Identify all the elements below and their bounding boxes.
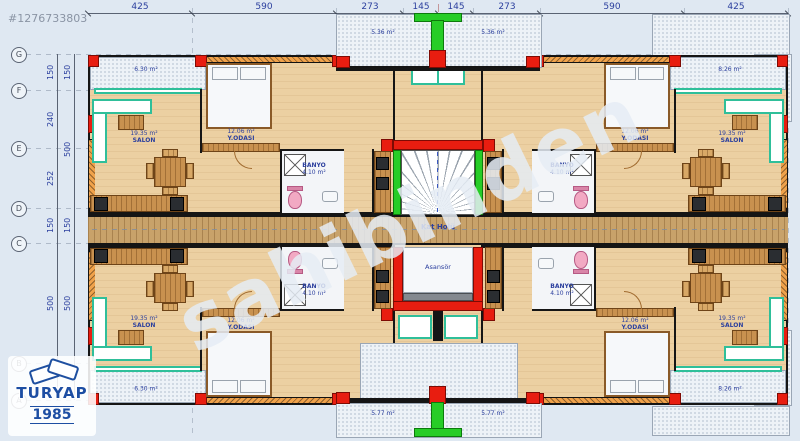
section-marker-stem (431, 402, 444, 430)
balcony-window (674, 88, 782, 94)
dim-top-3: 273 (350, 2, 390, 12)
column (669, 393, 681, 405)
chair (146, 163, 154, 179)
bedroom-wall (674, 89, 676, 153)
salon-name-text: SALON (694, 138, 770, 145)
balcony-window (94, 366, 202, 372)
bedroom-name-text: Y.ODASI (596, 324, 674, 331)
bath-area-text: 4.10 m² (534, 290, 590, 297)
balcony-area-label: 8.26 m² (680, 67, 780, 74)
grid-bubble-d: D (11, 201, 27, 217)
kitchen-wall (502, 245, 504, 311)
stair-wall (393, 140, 483, 150)
bath-label: BANYO 4.10 m² (286, 284, 342, 297)
salon-label: 19.35 m² SALON (694, 316, 770, 329)
fridge (376, 270, 389, 283)
salon-name-text: SALON (694, 322, 770, 329)
balcony-window (94, 88, 202, 94)
bath-label: BANYO 4.10 m² (534, 163, 590, 176)
appliance (692, 249, 706, 263)
exterior-wall-hatch-top (206, 397, 332, 404)
fridge (376, 177, 389, 190)
dimension-line-left-inner (74, 54, 75, 400)
column (777, 55, 788, 67)
dim-top-1: 425 (120, 2, 160, 12)
sink (538, 258, 554, 269)
pillow (638, 380, 664, 393)
bath-area-text: 4.10 m² (534, 170, 590, 177)
pillow (240, 67, 266, 80)
bedroom-name-text: Y.ODASI (202, 324, 280, 331)
sofa (724, 99, 784, 114)
chair (162, 303, 178, 311)
bedroom-wall (674, 307, 676, 371)
dim-left-outer-4: 150 (46, 209, 55, 241)
section-marker-stem (431, 20, 444, 52)
rear-window (398, 315, 432, 339)
apartment-top-left: 6.30 m² 12.06 m² Y.ODASI BANYO 4.10 m² 1… (88, 55, 393, 215)
elevator-wall (393, 301, 483, 311)
balcony-area-text: 6.30 m² (96, 67, 196, 74)
sink (322, 191, 338, 202)
bath-wall (594, 245, 596, 311)
pillow (212, 380, 238, 393)
fridge (487, 270, 500, 283)
sink (538, 191, 554, 202)
oven (376, 157, 389, 170)
sofa (92, 99, 152, 114)
balcony-area-label: 6.30 m² (96, 386, 196, 393)
chair (698, 265, 714, 273)
bath-wall (594, 149, 596, 215)
stove (94, 249, 108, 263)
logo-brand-text: TURYAP (8, 384, 96, 402)
dim-top-7: 590 (592, 2, 632, 12)
balcony-area-text: 8.26 m² (680, 386, 780, 393)
coffee-table (118, 330, 144, 345)
salon-label: 19.35 m² SALON (106, 131, 182, 144)
chair (682, 281, 690, 297)
salon-name-text: SALON (106, 322, 182, 329)
dining-table (690, 157, 722, 187)
dim-left-outer-2: 240 (46, 101, 55, 137)
wardrobe (202, 308, 280, 317)
column (88, 55, 99, 67)
balcony-top-right-label: 5.36 m² (463, 30, 523, 37)
kitchen-wall (502, 149, 504, 215)
oven (376, 290, 389, 303)
balcony-area-text: 5.36 m² (463, 30, 523, 37)
chair (162, 265, 178, 273)
bath-wall (280, 309, 344, 311)
bedroom-name-text: Y.ODASI (596, 136, 674, 143)
staircase (401, 150, 475, 215)
pillow (638, 67, 664, 80)
column (336, 392, 350, 404)
salon-label: 19.35 m² SALON (694, 131, 770, 144)
elevator-name-text: Asansör (403, 264, 473, 271)
bath-area-text: 4.10 m² (286, 290, 342, 297)
wc (288, 191, 302, 209)
hall-label: Kat Holü (403, 224, 473, 232)
chair (698, 187, 714, 195)
stove (768, 249, 782, 263)
terrace-hatch (652, 14, 790, 56)
apartment-top-right: 8.26 m² 12.06 m² Y.ODASI BANYO 4.10 m² 1… (483, 55, 788, 215)
bedroom-label: 12.06 m² Y.ODASI (202, 318, 280, 331)
stair-wall-green (393, 150, 401, 215)
balcony-bottom-right-label: 5.77 m² (463, 411, 523, 418)
coffee-table (732, 115, 758, 130)
pillow (610, 380, 636, 393)
exterior-wall-hatch-top (206, 56, 332, 63)
elevator-label: Asansör (403, 264, 473, 271)
grid-bubble-e: E (11, 141, 27, 157)
bath-wall (532, 309, 596, 311)
bedroom-label: 12.06 m² Y.ODASI (596, 129, 674, 142)
terrace-hatch (652, 406, 790, 436)
chair (698, 303, 714, 311)
dim-top-5: 145 (436, 2, 476, 12)
section-marker-bar (414, 428, 462, 437)
chair (186, 163, 194, 179)
dim-left-inner-4: 500 (63, 285, 72, 321)
grid-bubble-f: F (11, 83, 27, 99)
chair (698, 149, 714, 157)
sink (322, 258, 338, 269)
chair (146, 281, 154, 297)
agency-logo: TURYAP 1985 (8, 356, 96, 436)
fridge (487, 177, 500, 190)
bedroom-label: 12.06 m² Y.ODASI (202, 129, 280, 142)
exterior-wall-hatch-top (544, 397, 670, 404)
balcony-top-left-label: 5.36 m² (353, 30, 413, 37)
sofa (92, 346, 152, 361)
dim-top-8: 425 (716, 2, 756, 12)
sofa (724, 346, 784, 361)
floor-plan-canvas: { "meta": { "listing_id": "#1276733803",… (0, 0, 800, 441)
dim-left-outer-3: 252 (46, 160, 55, 196)
balcony-bottom-left-label: 5.77 m² (353, 411, 413, 418)
balcony-area-label: 8.26 m² (680, 386, 780, 393)
dim-top-2: 590 (244, 2, 284, 12)
listing-id: #1276733803 (8, 12, 87, 25)
oven (487, 157, 500, 170)
chair (162, 187, 178, 195)
salon-label: 19.35 m² SALON (106, 316, 182, 329)
balcony-area-text: 5.36 m² (353, 30, 413, 37)
wc (288, 251, 302, 269)
logo-year-text: 1985 (30, 406, 74, 424)
apartment-bottom-left: 6.30 m² 12.06 m² Y.ODASI BANYO 4.10 m² 1… (88, 245, 393, 405)
appliance (692, 197, 706, 211)
chair (162, 149, 178, 157)
pillow (212, 67, 238, 80)
balcony-window (674, 366, 782, 372)
dining-table (154, 273, 186, 303)
balcony-area-label: 6.30 m² (96, 67, 196, 74)
wc-tank (573, 269, 589, 274)
wardrobe (596, 308, 674, 317)
wc (574, 251, 588, 269)
elevator-sill (403, 293, 473, 301)
pillow (240, 380, 266, 393)
dim-left-inner-1: 150 (63, 56, 72, 88)
column (336, 56, 350, 68)
apartment-bottom-right: 8.26 m² 12.06 m² Y.ODASI BANYO 4.10 m² 1… (483, 245, 788, 405)
dining-table (690, 273, 722, 303)
dim-left-inner-2: 500 (63, 131, 72, 167)
hall-name-text: Kat Holü (403, 224, 473, 232)
column (669, 55, 681, 67)
balcony-area-text: 5.77 m² (463, 411, 523, 418)
appliance (170, 197, 184, 211)
column (483, 308, 495, 321)
wc-tank (287, 269, 303, 274)
rear-window (444, 315, 478, 339)
coffee-table (118, 115, 144, 130)
bath-area-text: 4.10 m² (286, 170, 342, 177)
bath-label: BANYO 4.10 m² (286, 163, 342, 176)
appliance (170, 249, 184, 263)
oven (487, 290, 500, 303)
chair (682, 163, 690, 179)
stove (94, 197, 108, 211)
coffee-table (732, 330, 758, 345)
dim-left-outer-1: 150 (46, 56, 55, 88)
stove (768, 197, 782, 211)
stair-wall-green (475, 150, 483, 215)
stair-centerline (437, 152, 438, 213)
dining-table (154, 157, 186, 187)
pillow (610, 67, 636, 80)
grid-bubble-c: C (11, 236, 27, 252)
dimension-line-left-outer (57, 54, 58, 400)
bedroom-name-text: Y.ODASI (202, 136, 280, 143)
balcony-area-text: 5.77 m² (353, 411, 413, 418)
dim-top-6: 273 (487, 2, 527, 12)
grid-bubble-g: G (11, 47, 27, 63)
wc (574, 191, 588, 209)
exterior-wall-hatch-top (544, 56, 670, 63)
bath-label: BANYO 4.10 m² (534, 284, 590, 297)
column (526, 56, 540, 68)
balcony-area-text: 6.30 m² (96, 386, 196, 393)
chair (722, 281, 730, 297)
balcony-area-text: 8.26 m² (680, 67, 780, 74)
bedroom-label: 12.06 m² Y.ODASI (596, 318, 674, 331)
chair (722, 163, 730, 179)
dim-left-outer-5: 500 (46, 285, 55, 321)
column (381, 308, 393, 321)
salon-name-text: SALON (106, 138, 182, 145)
dim-top-4: 145 (401, 2, 441, 12)
rear-wall (433, 311, 443, 341)
column (777, 393, 788, 405)
dim-left-inner-3: 150 (63, 209, 72, 241)
section-marker-base (429, 50, 446, 68)
chair (186, 281, 194, 297)
column (526, 392, 540, 404)
